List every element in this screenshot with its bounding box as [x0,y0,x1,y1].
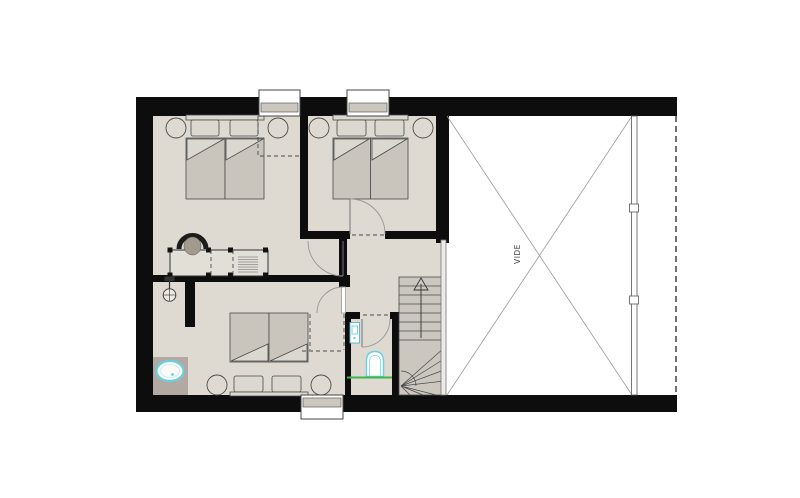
floor-plan-page: VIDE [0,0,800,498]
pillow [230,120,258,136]
window-bedroom3 [301,395,343,419]
wall-bathroom-bedroom3 [185,282,195,327]
pillow [191,120,219,136]
floor-plan: VIDE [0,0,800,498]
toilet [367,352,384,377]
void-label: VIDE [513,244,522,264]
wall-left [136,97,153,412]
window-bedroom2 [347,90,389,116]
nightstand [268,118,288,138]
nightstand [311,375,331,395]
desk-hatch [238,257,258,272]
pillow [337,120,366,136]
wc-hand-basin [350,323,360,344]
nightstand [166,118,186,138]
desk [168,248,269,278]
wall-bedroom2-right [436,116,449,243]
wall-wc-right [392,312,399,395]
mullion [630,204,639,212]
stair-railing [441,240,446,395]
window-bedroom1 [259,90,300,116]
glazed-facade [630,116,639,395]
wall-bottom [136,395,677,412]
nightstand [413,118,433,138]
wall-wc-top-left [345,312,360,319]
pillow [234,376,263,392]
wall-bedroom1-bedroom2 [300,116,308,239]
void-area: VIDE [447,116,632,395]
door-partition [342,287,346,313]
wall-top [136,97,677,116]
nightstand [207,375,227,395]
sink [157,361,184,381]
nightstand [309,118,329,138]
pillow [375,120,404,136]
wall-bedroom2-bottom-left [300,231,350,239]
mullion [630,296,639,304]
pillow [272,376,301,392]
